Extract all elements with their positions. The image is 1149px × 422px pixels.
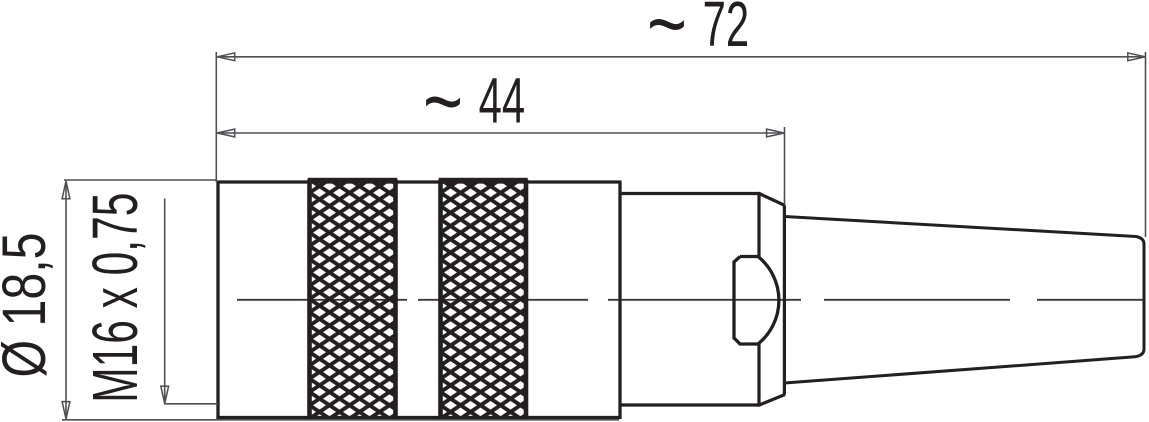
svg-text:~: ~	[647, 0, 687, 73]
svg-text:~: ~	[423, 52, 463, 151]
svg-text:72: 72	[703, 0, 750, 60]
svg-text:Ø 18,5: Ø 18,5	[0, 233, 58, 378]
svg-text:M16 x 0,75: M16 x 0,75	[79, 193, 151, 403]
svg-text:44: 44	[479, 65, 525, 137]
